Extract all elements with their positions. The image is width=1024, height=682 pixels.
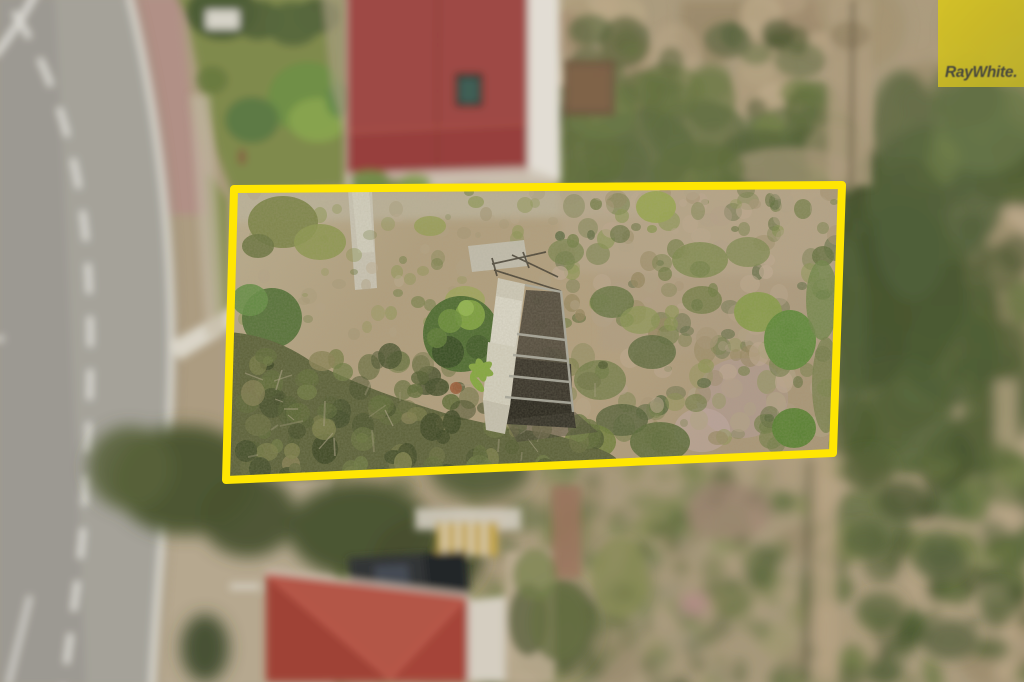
svg-text:RayWhite.: RayWhite.	[945, 64, 1017, 81]
